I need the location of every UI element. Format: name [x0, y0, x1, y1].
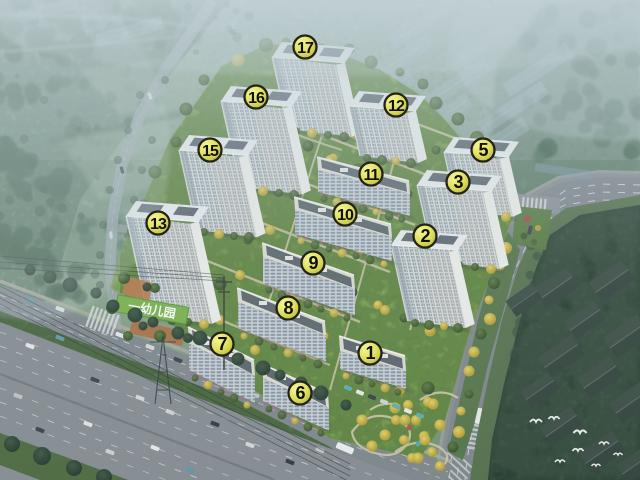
svg-text:16: 16: [248, 90, 265, 107]
svg-text:15: 15: [202, 143, 219, 160]
svg-text:7: 7: [217, 334, 227, 354]
svg-text:10: 10: [337, 207, 354, 224]
svg-text:3: 3: [453, 172, 463, 192]
svg-text:12: 12: [388, 98, 405, 115]
svg-text:13: 13: [150, 216, 167, 233]
svg-text:17: 17: [297, 40, 314, 57]
svg-text:8: 8: [283, 298, 293, 318]
svg-text:6: 6: [295, 383, 305, 403]
svg-text:5: 5: [478, 140, 488, 160]
svg-text:9: 9: [308, 253, 318, 273]
svg-text:1: 1: [365, 343, 375, 363]
svg-text:2: 2: [420, 226, 430, 246]
svg-text:11: 11: [364, 167, 380, 184]
